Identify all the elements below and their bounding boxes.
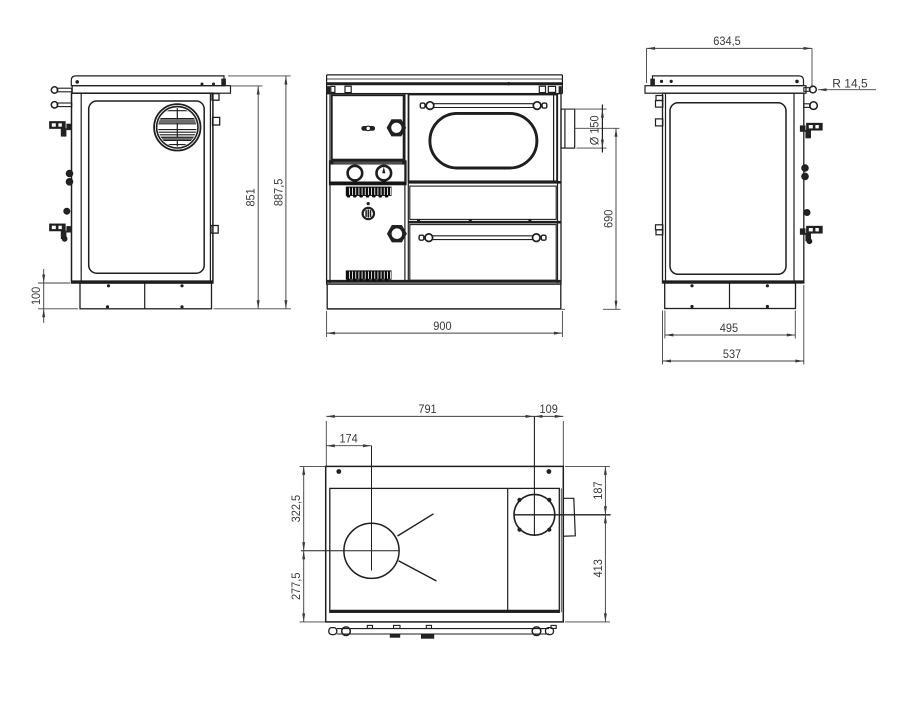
svg-text:537: 537 — [723, 347, 741, 361]
svg-text:187: 187 — [591, 481, 605, 499]
svg-text:887,5: 887,5 — [271, 178, 285, 206]
svg-text:690: 690 — [601, 209, 615, 228]
svg-text:851: 851 — [244, 188, 258, 206]
svg-text:109: 109 — [540, 402, 558, 416]
svg-text:322,5: 322,5 — [289, 494, 303, 522]
svg-text:634,5: 634,5 — [713, 34, 741, 48]
svg-text:174: 174 — [339, 432, 358, 446]
svg-text:791: 791 — [418, 402, 436, 416]
svg-text:900: 900 — [433, 319, 452, 333]
svg-text:495: 495 — [720, 321, 739, 335]
svg-text:Ø 150: Ø 150 — [587, 115, 601, 145]
svg-text:413: 413 — [591, 559, 605, 578]
svg-text:277,5: 277,5 — [289, 572, 303, 600]
svg-text:100: 100 — [29, 286, 43, 305]
svg-text:R 14,5: R 14,5 — [832, 76, 868, 90]
